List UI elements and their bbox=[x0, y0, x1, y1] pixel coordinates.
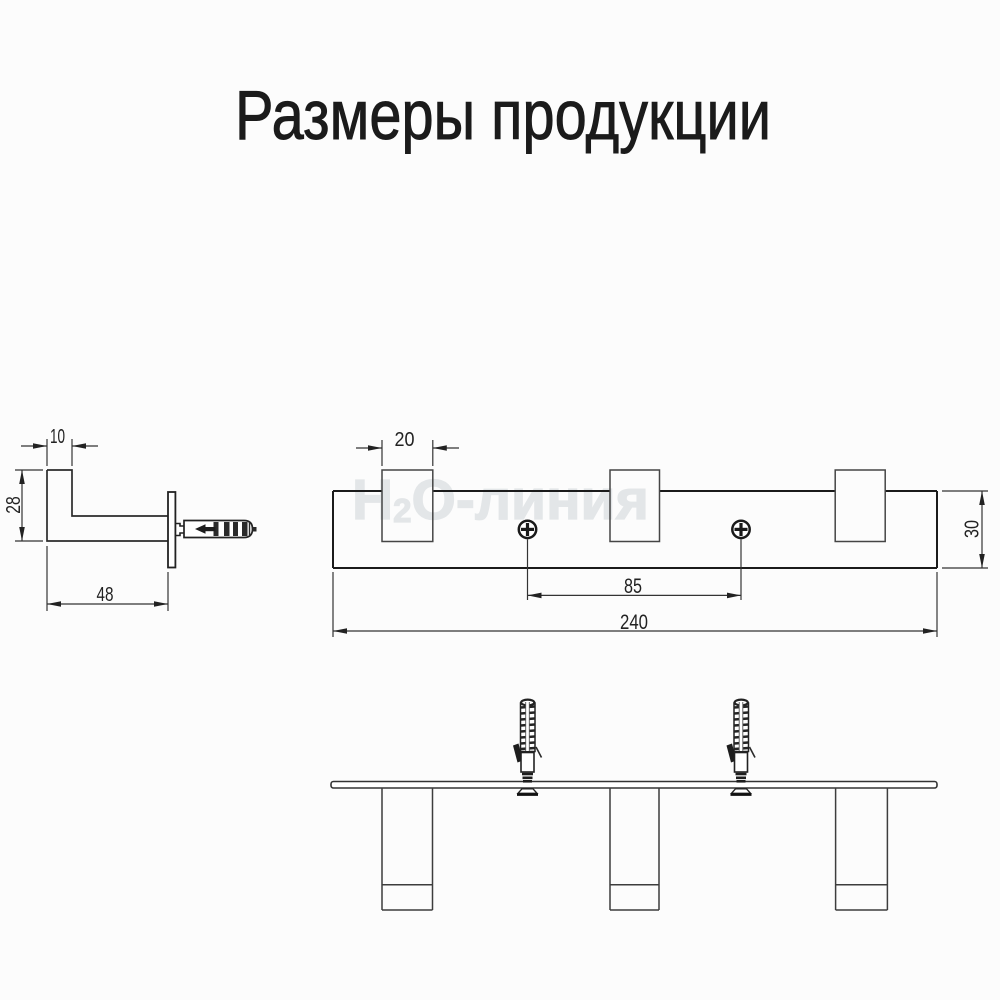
svg-text:20: 20 bbox=[395, 429, 415, 451]
svg-text:30: 30 bbox=[961, 520, 984, 538]
svg-text:85: 85 bbox=[624, 575, 642, 598]
svg-text:H2O-линия: H2O-линия bbox=[352, 468, 649, 532]
svg-text:48: 48 bbox=[97, 584, 114, 606]
svg-text:10: 10 bbox=[50, 426, 65, 448]
svg-text:Размеры продукции: Размеры продукции bbox=[235, 76, 771, 154]
svg-text:240: 240 bbox=[620, 611, 648, 634]
svg-text:28: 28 bbox=[2, 496, 25, 514]
